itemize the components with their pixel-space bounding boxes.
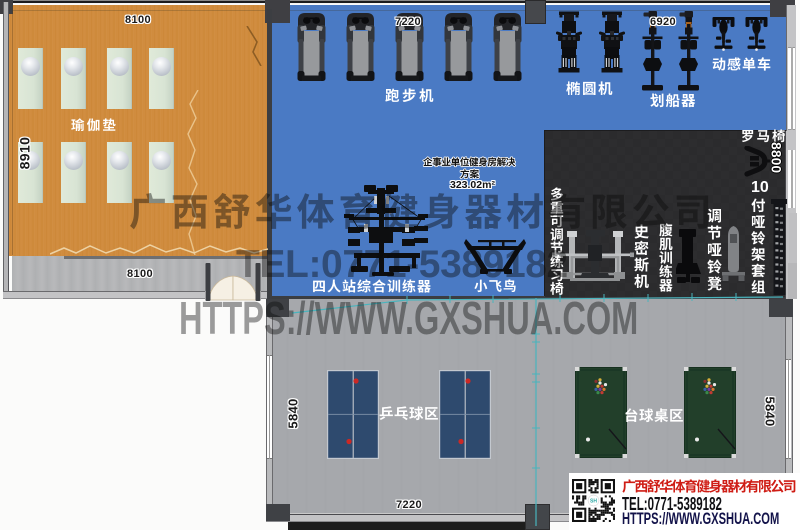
svg-text:SH: SH — [590, 499, 597, 505]
